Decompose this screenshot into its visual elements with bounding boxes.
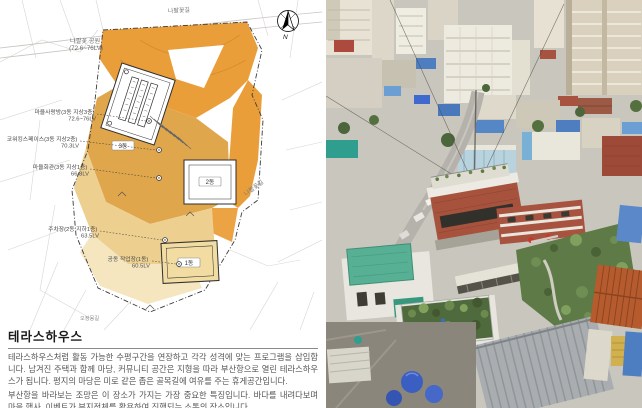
annotation-label: 마을사랑방(3동 지상3층) 72.6~76LV (34, 108, 96, 123)
badge-dong2: 2동 (199, 177, 221, 186)
site-plan: 3동 2동 1동 (0, 0, 322, 330)
page-title: 테라스하우스 (8, 326, 318, 349)
road-label-top: 나팔꽃길 (168, 6, 191, 15)
annotation-label: 코워킹스페이스(3동 지상2층) 70.3LV (7, 135, 79, 150)
left-page: 3동 2동 1동 (0, 0, 322, 408)
svg-text:N: N (283, 34, 288, 41)
north-compass-icon: N (278, 11, 299, 42)
park-label: 나팔꽃 공원 (72.6~76LV) (69, 37, 103, 52)
annotation-label: 주차장(2동 지하1층) 63.5LV (48, 225, 99, 240)
svg-text:2동: 2동 (206, 179, 215, 186)
road-label-bottom: 오정몽길 (80, 314, 99, 322)
description-block: 테라스하우스 테라스하우스처럼 활동 가능한 수평구간을 연장하고 각각 성격에… (8, 326, 318, 408)
description-paragraph-2: 부산항을 바라보는 조망은 이 장소가 가지는 가장 중요한 특징입니다. 바다… (8, 390, 318, 408)
svg-text:3동: 3동 (119, 143, 128, 150)
terrace-lower-orange (210, 208, 238, 242)
annotation-label: 마을회관(3동 지상1층) 66.8LV (33, 163, 89, 178)
aerial-photo-illustration (326, 0, 642, 408)
svg-text:1동: 1동 (185, 260, 194, 267)
badge-dong3: 3동 (112, 141, 134, 150)
aerial-photo (326, 0, 642, 408)
bottom-left-alley (326, 322, 476, 408)
page: 3동 2동 1동 (0, 0, 642, 408)
description-paragraph-1: 테라스하우스처럼 활동 가능한 수평구간을 연장하고 각각 성격에 맞는 프로그… (8, 352, 318, 387)
